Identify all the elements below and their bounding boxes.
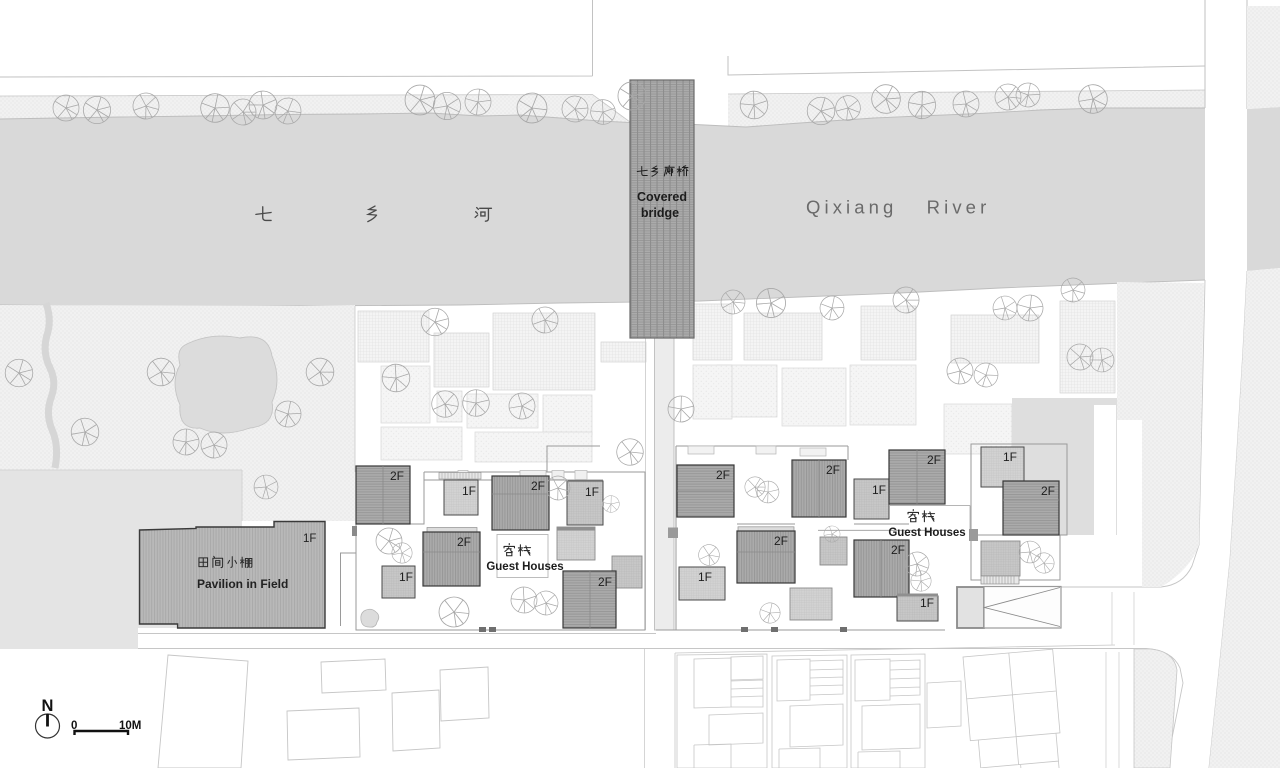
svg-text:1F: 1F	[303, 533, 316, 545]
svg-text:2F: 2F	[531, 479, 545, 493]
svg-text:1F: 1F	[585, 485, 599, 499]
svg-text:1F: 1F	[1003, 450, 1017, 464]
svg-text:Qixiang River: Qixiang River	[806, 197, 990, 218]
svg-text:2F: 2F	[598, 575, 612, 589]
svg-text:1F: 1F	[399, 570, 413, 584]
svg-text:1F: 1F	[698, 570, 712, 584]
svg-text:2F: 2F	[826, 463, 840, 477]
svg-text:Guest Houses: Guest Houses	[486, 561, 563, 573]
svg-text:Covered: Covered	[637, 190, 687, 204]
svg-text:1F: 1F	[462, 484, 476, 498]
svg-text:2F: 2F	[390, 469, 404, 483]
svg-text:1F: 1F	[920, 596, 934, 610]
svg-text:N: N	[42, 697, 54, 715]
svg-text:2F: 2F	[716, 468, 730, 482]
svg-text:2F: 2F	[927, 453, 941, 467]
svg-text:Pavilion in Field: Pavilion in Field	[197, 577, 288, 591]
svg-text:2F: 2F	[457, 535, 471, 549]
svg-text:2F: 2F	[774, 534, 788, 548]
svg-text:bridge: bridge	[641, 206, 679, 220]
svg-text:Guest Houses: Guest Houses	[888, 527, 965, 539]
svg-text:2F: 2F	[891, 543, 905, 557]
svg-text:1F: 1F	[872, 483, 886, 497]
svg-text:2F: 2F	[1041, 484, 1055, 498]
